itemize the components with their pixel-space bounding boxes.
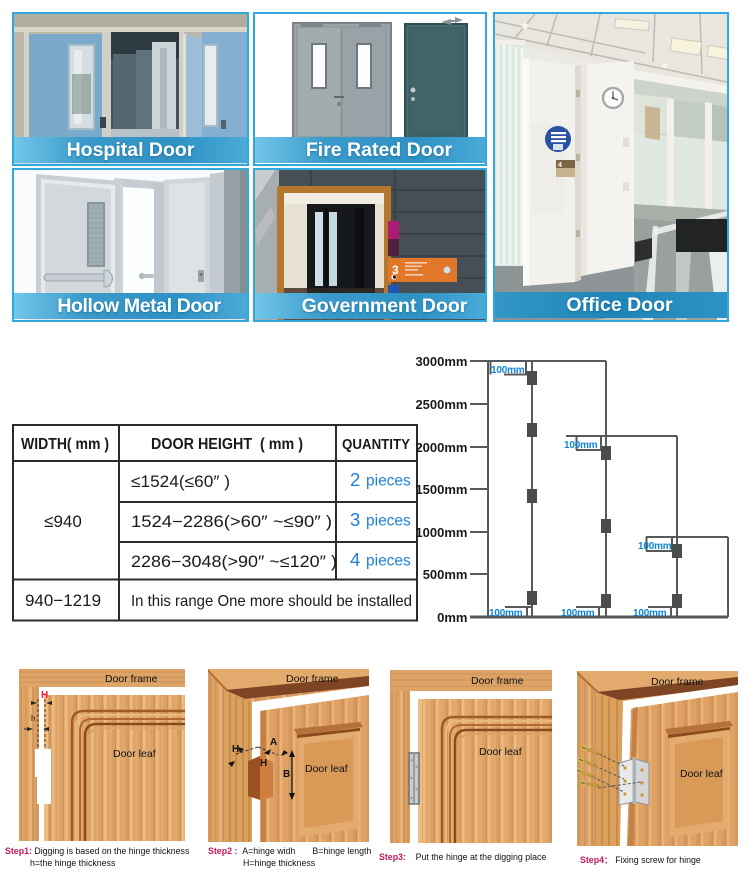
svg-text:100mm: 100mm bbox=[564, 440, 598, 451]
svg-text:100mm: 100mm bbox=[489, 608, 523, 619]
svg-text:H: H bbox=[260, 758, 267, 769]
svg-text:100mm: 100mm bbox=[638, 541, 672, 552]
svg-text:H: H bbox=[41, 690, 48, 701]
svg-text:Door leaf: Door leaf bbox=[680, 768, 723, 780]
svg-text:≤940: ≤940 bbox=[44, 512, 82, 531]
svg-text:Door frame: Door frame bbox=[286, 673, 339, 685]
svg-text:3000mm: 3000mm bbox=[415, 354, 467, 369]
svg-text:Door leaf: Door leaf bbox=[479, 746, 522, 758]
svg-text:WIDTH( mm ): WIDTH( mm ) bbox=[21, 436, 109, 453]
svg-text:0mm: 0mm bbox=[437, 610, 467, 625]
svg-text:2286−3048(>90″ ~≤120″ ): 2286−3048(>90″ ~≤120″ ) bbox=[131, 553, 337, 571]
svg-text:500mm: 500mm bbox=[423, 567, 468, 582]
svg-text:Door frame: Door frame bbox=[651, 676, 704, 688]
svg-text:1524−2286(>60″ ~≤90″ ): 1524−2286(>60″ ~≤90″ ) bbox=[131, 513, 332, 531]
svg-text:2000mm: 2000mm bbox=[415, 440, 467, 455]
svg-text:3: 3 bbox=[350, 509, 360, 530]
svg-text:DOOR HEIGHT ( mm ): DOOR HEIGHT ( mm ) bbox=[151, 436, 303, 453]
svg-text:In this range One more should: In this range One more should be install… bbox=[131, 593, 412, 610]
svg-text:Door leaf: Door leaf bbox=[305, 763, 348, 775]
svg-text:A: A bbox=[270, 737, 277, 748]
svg-text:2500mm: 2500mm bbox=[415, 397, 467, 412]
svg-text:940−1219: 940−1219 bbox=[25, 591, 101, 610]
svg-text:100mm: 100mm bbox=[633, 608, 667, 619]
svg-text:Door frame: Door frame bbox=[105, 673, 158, 685]
svg-text:B: B bbox=[283, 769, 290, 780]
svg-text:100mm: 100mm bbox=[491, 365, 525, 376]
svg-text:h: h bbox=[31, 714, 35, 723]
svg-text:1000mm: 1000mm bbox=[415, 525, 467, 540]
svg-text:H: H bbox=[232, 744, 239, 755]
svg-text:4: 4 bbox=[558, 162, 562, 169]
svg-text:QUANTITY: QUANTITY bbox=[342, 437, 410, 453]
svg-text:4: 4 bbox=[350, 549, 360, 570]
svg-text:Door frame: Door frame bbox=[471, 675, 524, 687]
svg-text:1500mm: 1500mm bbox=[415, 482, 467, 497]
svg-text:Door leaf: Door leaf bbox=[113, 748, 156, 760]
svg-text:≤1524(≤60″ ): ≤1524(≤60″ ) bbox=[131, 473, 230, 491]
svg-text:2: 2 bbox=[350, 469, 360, 490]
svg-text:100mm: 100mm bbox=[561, 608, 595, 619]
